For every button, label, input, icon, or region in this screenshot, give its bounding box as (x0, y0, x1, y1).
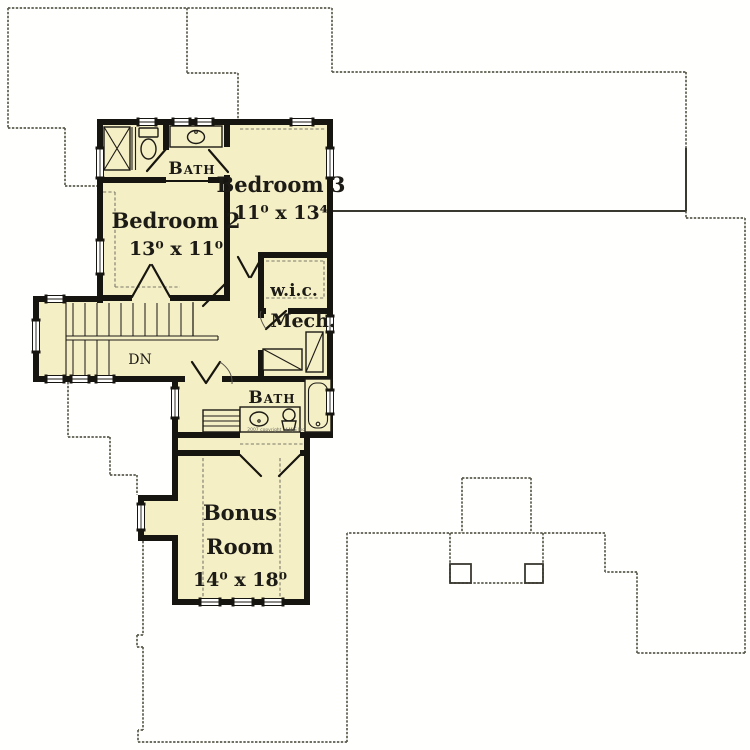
stair-hall-floor (36, 299, 106, 379)
window-icon (32, 319, 41, 354)
wic-label: w.i.c. (269, 281, 318, 301)
bedroom3-label: Bedroom 3 (216, 172, 345, 197)
toilet-bowl-icon (141, 139, 156, 159)
window-icon (70, 375, 91, 384)
lower-level-outline (332, 148, 686, 211)
window-icon (45, 295, 66, 304)
window-icon (137, 118, 158, 127)
window-icon (326, 389, 335, 416)
window-icon (172, 118, 192, 127)
lower-bath-label: Bath (248, 388, 295, 408)
window-icon (199, 598, 222, 607)
window-icon (195, 118, 215, 127)
window-icon (96, 239, 105, 276)
stairs-dn-label: DN (128, 352, 151, 368)
window-icon (171, 387, 180, 420)
toilet-2-bowl-icon (283, 409, 295, 421)
window-icon (95, 375, 116, 384)
window-icon (290, 118, 315, 127)
toilet-tank-icon (139, 128, 158, 137)
porch-column-left (450, 564, 471, 583)
bedroom2-dims: 13⁰ x 11⁰ (129, 238, 223, 260)
window-icon (96, 147, 105, 180)
window-icon (45, 375, 66, 384)
bonus-room-label-2: Room (206, 534, 274, 559)
window-icon (232, 598, 255, 607)
window-icon (137, 503, 146, 532)
porch-column-right (525, 564, 543, 583)
sink-icon (188, 131, 205, 144)
bedroom2-label: Bedroom 2 (111, 208, 240, 233)
floor-plan-page: Bedroom 2 13⁰ x 11⁰ Bedroom 3 11⁰ x 13⁴ … (0, 0, 750, 750)
upper-bath-label: Bath (168, 159, 215, 179)
bonus-room-label-1: Bonus (203, 500, 277, 525)
copyright-text: 2007 copyright of MJS Inc (247, 427, 305, 433)
sink-2-icon (250, 412, 268, 426)
floor-plan-svg: Bedroom 2 13⁰ x 11⁰ Bedroom 3 11⁰ x 13⁴ … (0, 0, 750, 750)
bedroom3-dims: 11⁰ x 13⁴ (234, 202, 328, 224)
window-icon (262, 598, 285, 607)
bonus-room-dims: 14⁰ x 18⁰ (193, 569, 287, 591)
mech-label: Mech. (270, 310, 335, 332)
